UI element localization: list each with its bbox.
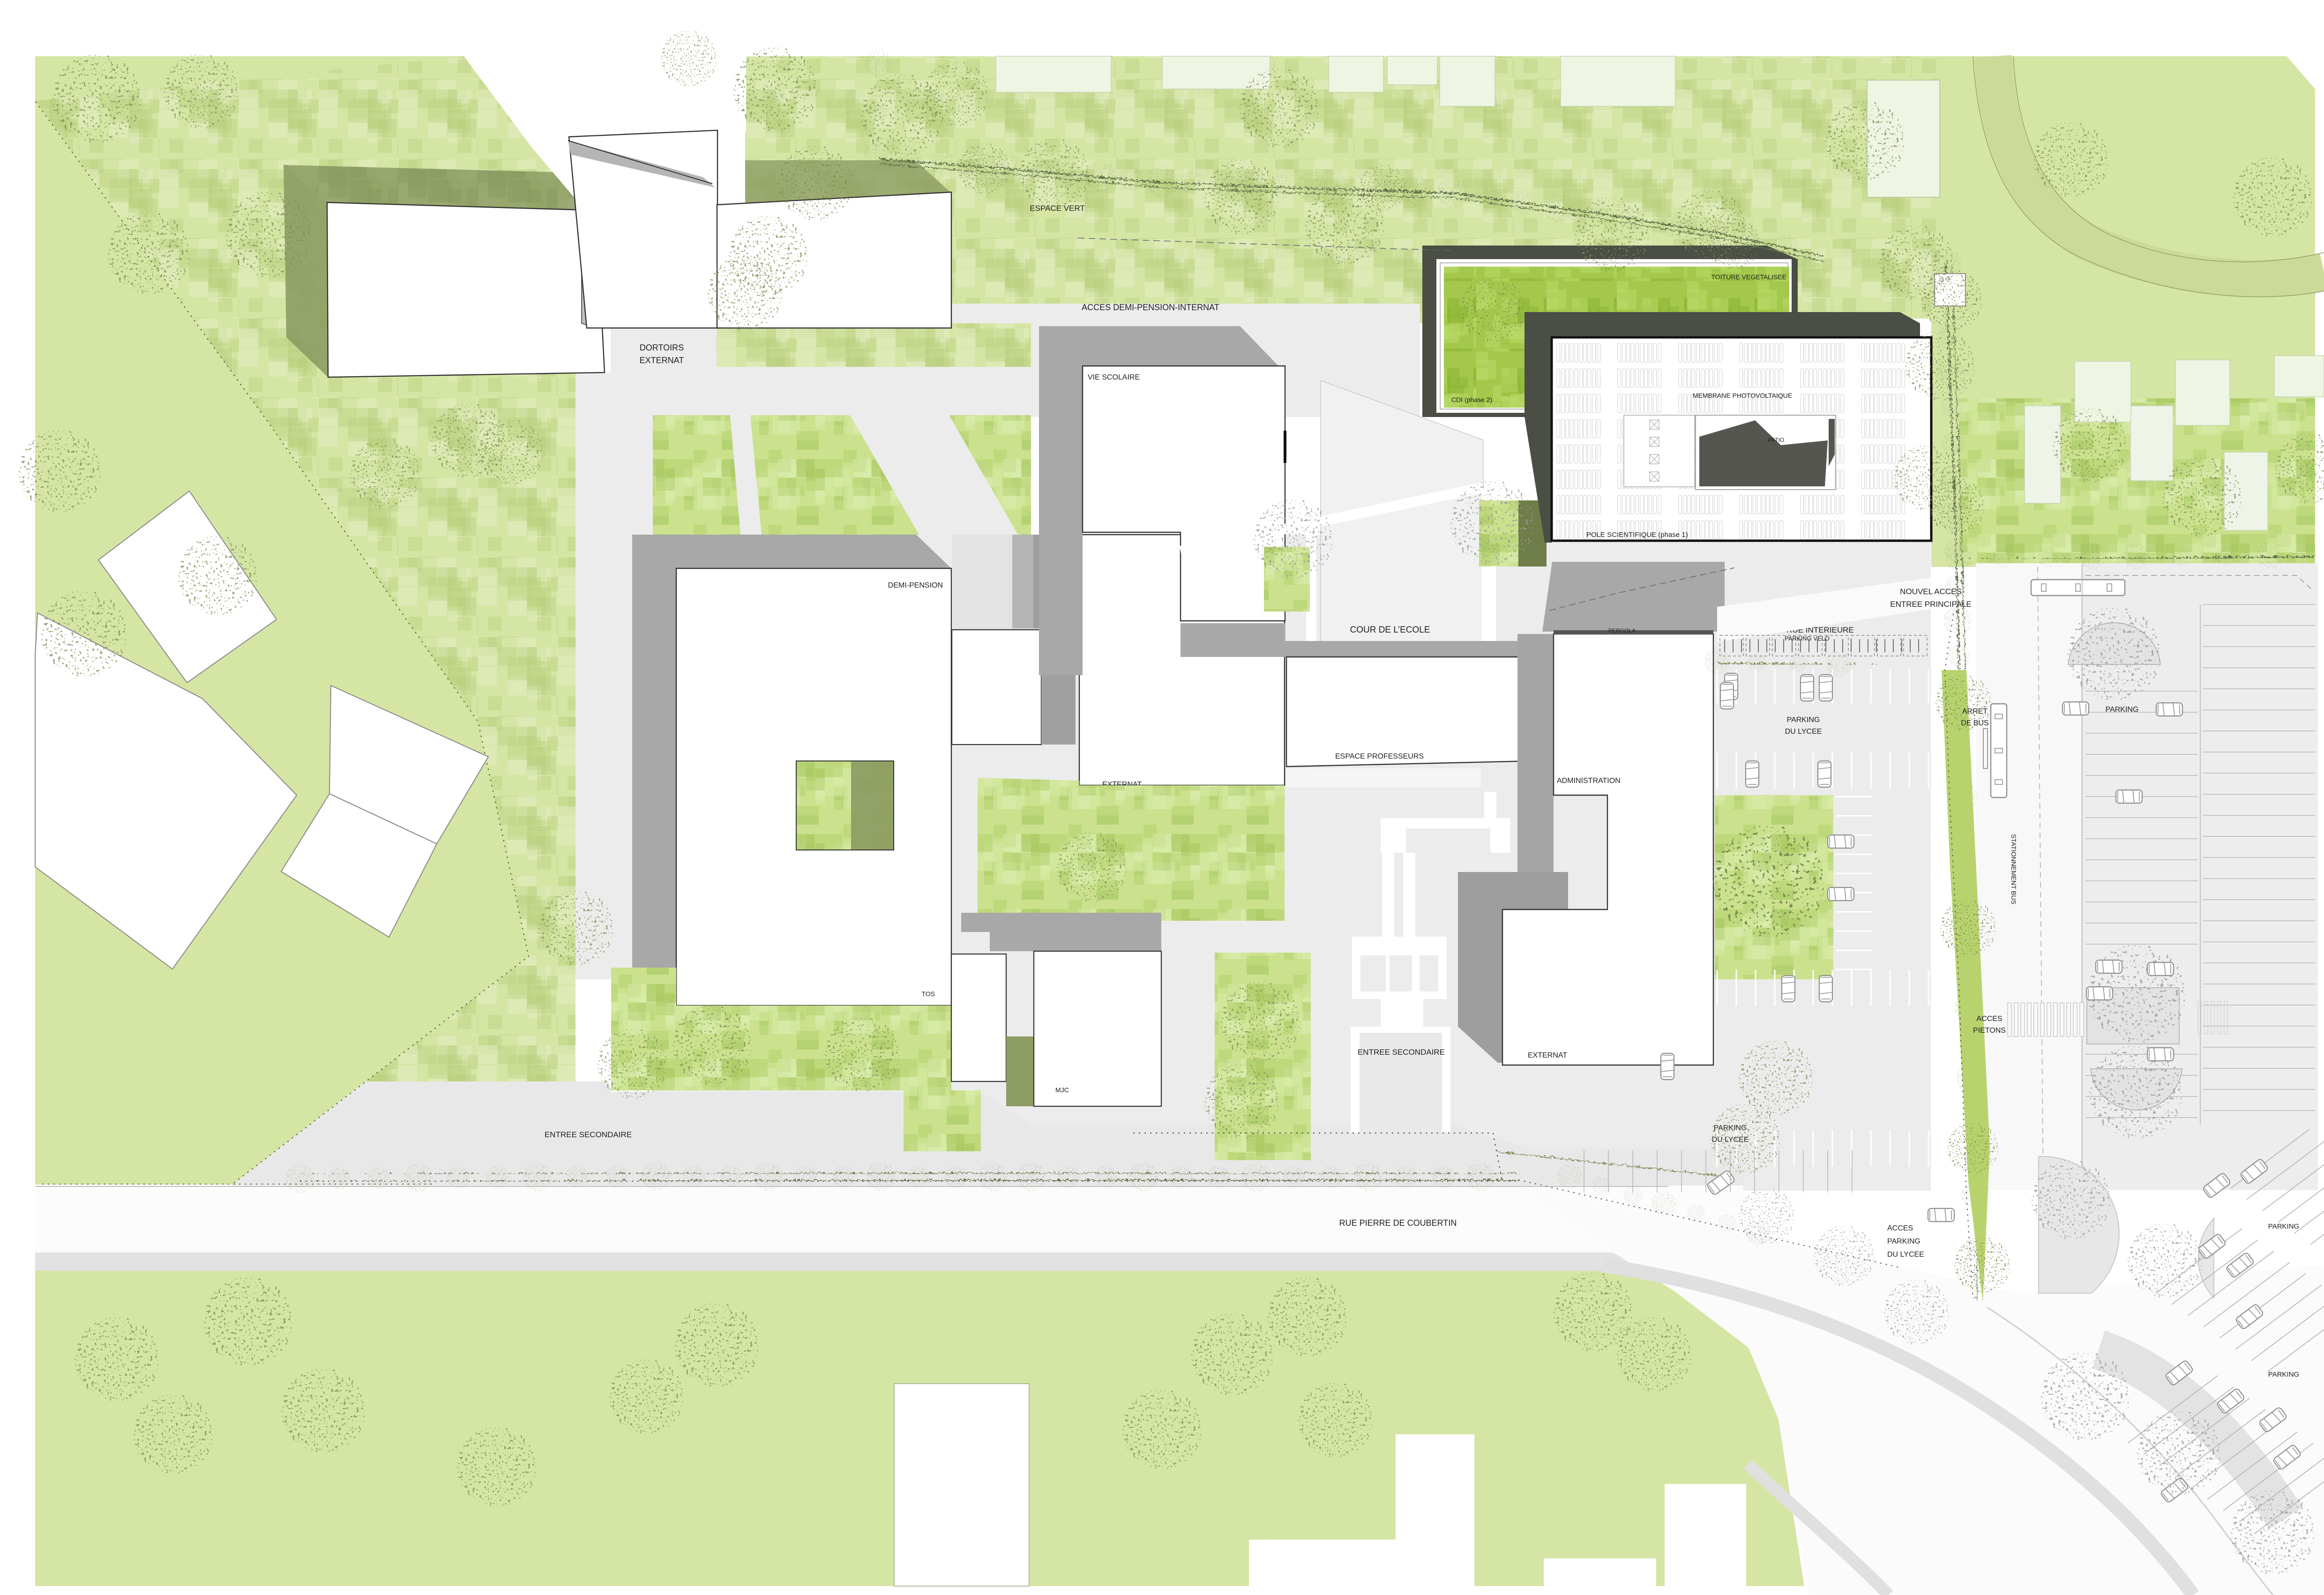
svg-text:ACCES DEMI-PENSION-INTERNAT: ACCES DEMI-PENSION-INTERNAT	[1082, 303, 1219, 312]
svg-text:PARKING: PARKING	[1787, 716, 1820, 724]
svg-text:PARKING: PARKING	[2268, 1371, 2299, 1379]
svg-text:PARKING: PARKING	[2268, 1222, 2299, 1230]
svg-text:DU LYCEE: DU LYCEE	[1785, 728, 1822, 736]
svg-text:TOITURE VEGETALISEE: TOITURE VEGETALISEE	[1711, 273, 1786, 281]
svg-text:PARKING: PARKING	[1887, 1237, 1920, 1245]
svg-text:NOUVEL ACCES: NOUVEL ACCES	[1900, 587, 1962, 596]
svg-text:PARKING: PARKING	[2106, 706, 2139, 714]
svg-text:ESPACE PROFESSEURS: ESPACE PROFESSEURS	[1335, 753, 1424, 760]
svg-text:ACCES: ACCES	[1976, 1015, 2002, 1023]
svg-text:MJC: MJC	[1055, 1086, 1069, 1094]
svg-text:TOS: TOS	[921, 990, 935, 998]
svg-text:VIE SCOLAIRE: VIE SCOLAIRE	[1088, 373, 1140, 381]
svg-text:ENTREE SECONDAIRE: ENTREE SECONDAIRE	[1358, 1048, 1445, 1057]
svg-text:DU LYCEE: DU LYCEE	[1887, 1251, 1924, 1259]
svg-text:PIETONS: PIETONS	[1973, 1027, 2006, 1035]
svg-text:RUE PIERRE DE COUBERTIN: RUE PIERRE DE COUBERTIN	[1339, 1218, 1457, 1228]
svg-text:PARKING VELO: PARKING VELO	[1785, 635, 1830, 642]
svg-text:ENTREE SECONDAIRE: ENTREE SECONDAIRE	[545, 1130, 632, 1139]
svg-text:ENTREE PRINCIPALE: ENTREE PRINCIPALE	[1890, 600, 1972, 609]
svg-text:STATIONNEMENT BUS: STATIONNEMENT BUS	[2010, 834, 2018, 904]
svg-text:DORTOIRS: DORTOIRS	[640, 343, 684, 352]
svg-text:DEMI-PENSION: DEMI-PENSION	[888, 581, 943, 589]
svg-text:ACCES: ACCES	[1887, 1224, 1913, 1232]
svg-text:EXTERNAT: EXTERNAT	[640, 356, 684, 365]
svg-text:CDI (phase 2): CDI (phase 2)	[1451, 396, 1492, 403]
svg-text:EXTERNAT: EXTERNAT	[1528, 1051, 1567, 1059]
svg-text:PERGOLA: PERGOLA	[1608, 627, 1636, 634]
svg-text:POLE SCIENTIFIQUE (phase 1): POLE SCIENTIFIQUE (phase 1)	[1586, 531, 1688, 539]
svg-text:PATIO: PATIO	[1768, 437, 1784, 443]
svg-text:COUR DE L’ECOLE: COUR DE L’ECOLE	[1350, 625, 1430, 635]
svg-text:ADMINISTRATION: ADMINISTRATION	[1557, 777, 1621, 785]
svg-text:MEMBRANE PHOTOVOLTAIQUE: MEMBRANE PHOTOVOLTAIQUE	[1693, 392, 1792, 399]
